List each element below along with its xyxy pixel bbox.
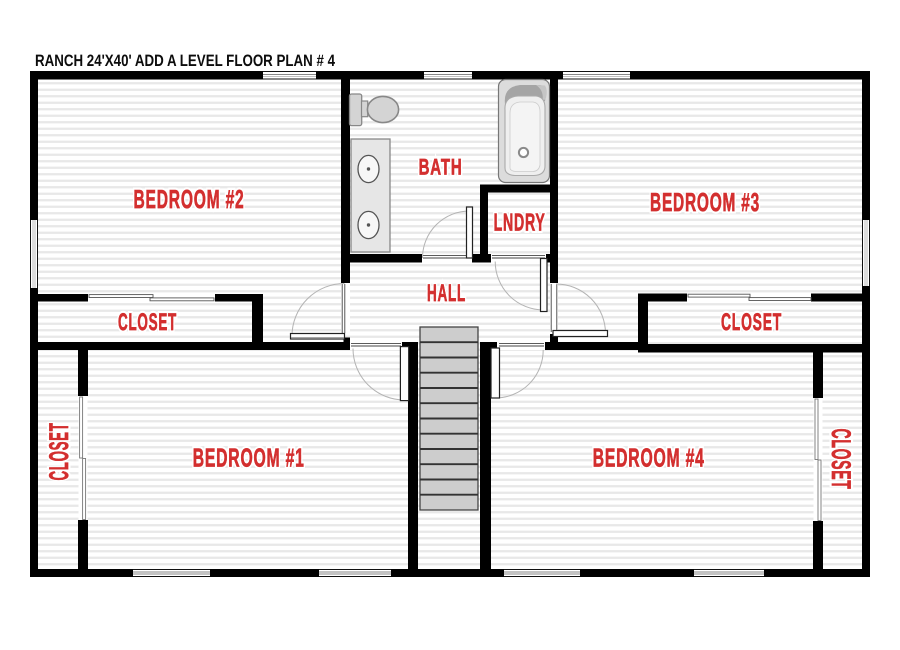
svg-text:BEDROOM #3: BEDROOM #3 [650,187,760,217]
svg-text:BATH: BATH [419,155,463,180]
svg-text:RANCH 24'X40' ADD A LEVEL FLOO: RANCH 24'X40' ADD A LEVEL FLOOR PLAN # 4 [35,52,336,70]
svg-text:BEDROOM #1: BEDROOM #1 [193,443,305,473]
svg-text:CLOSET: CLOSET [118,309,177,336]
svg-text:LNDRY: LNDRY [494,210,546,237]
svg-text:HALL: HALL [427,280,466,307]
svg-text:CLOSET: CLOSET [826,429,856,490]
svg-text:CLOSET: CLOSET [44,423,74,481]
svg-text:BEDROOM #4: BEDROOM #4 [593,443,705,473]
svg-text:CLOSET: CLOSET [721,309,782,336]
svg-text:BEDROOM #2: BEDROOM #2 [134,184,245,214]
